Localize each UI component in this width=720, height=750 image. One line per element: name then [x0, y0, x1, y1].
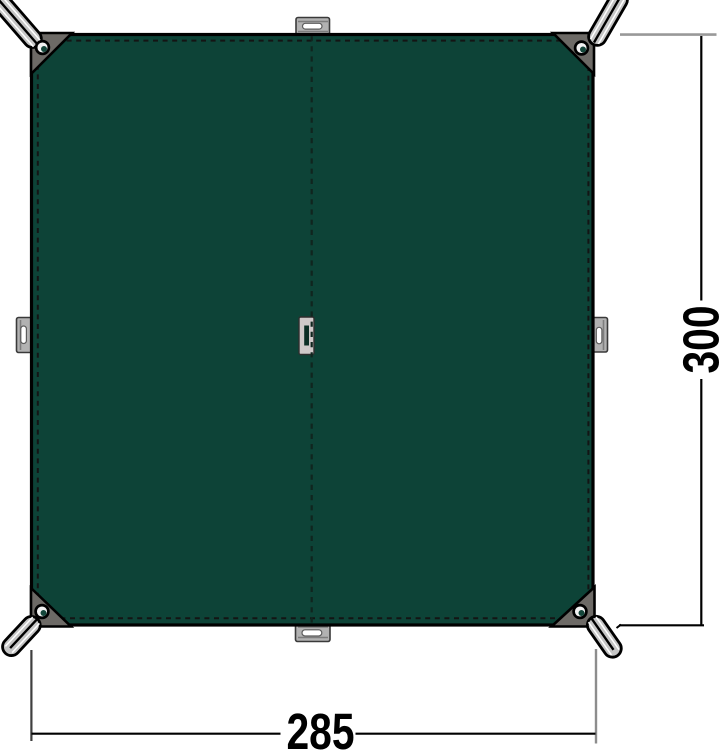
svg-text:300: 300	[672, 305, 720, 373]
svg-text:285: 285	[286, 703, 354, 750]
